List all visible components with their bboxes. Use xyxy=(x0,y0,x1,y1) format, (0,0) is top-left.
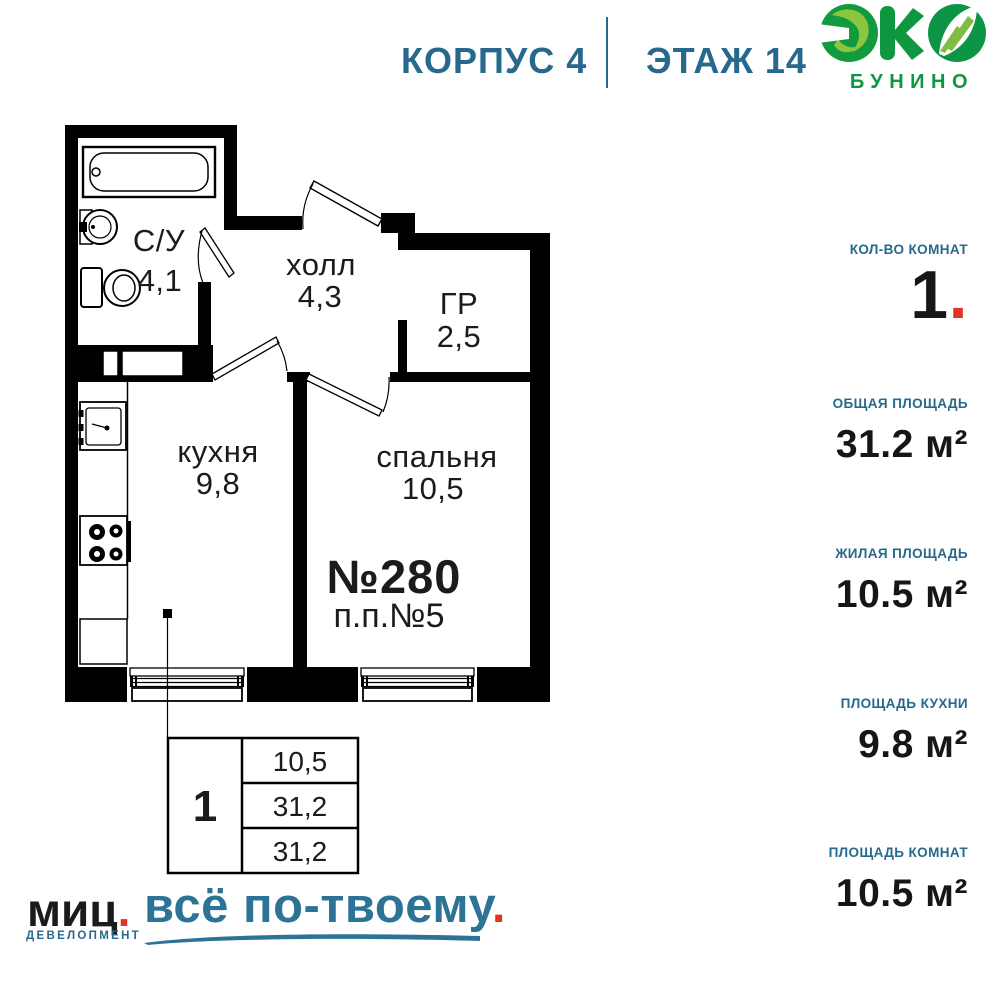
room-bathroom-name: С/У xyxy=(133,223,185,258)
bathroom-transom-windows xyxy=(103,351,183,376)
stat-total-area-label: ОБЩАЯ ПЛОЩАДЬ xyxy=(688,396,968,411)
stat-rooms-area-value: 10.5 м² xyxy=(688,872,968,916)
apartment-number: №280 xyxy=(327,550,462,603)
room-kitchen-name: кухня xyxy=(177,434,258,469)
building-label: КОРПУС 4 xyxy=(401,40,587,82)
emblem-letter-e xyxy=(818,4,878,62)
emblem-letter-k xyxy=(880,6,924,60)
stat-kitchen-area-label: ПЛОЩАДЬ КУХНИ xyxy=(688,696,968,711)
stat-kitchen-area-value: 9.8 м² xyxy=(688,723,968,767)
room-bedroom-name: спальня xyxy=(376,439,497,474)
stat-living-area-value: 10.5 м² xyxy=(688,573,968,617)
kitchen-window xyxy=(127,667,247,702)
table-total-area-2: 31,2 xyxy=(273,836,328,867)
apartment-info-table: 1 10,5 31,2 31,2 xyxy=(168,738,358,873)
bedroom-door xyxy=(306,374,389,416)
stat-living-area-label: ЖИЛАЯ ПЛОЩАДЬ xyxy=(688,546,968,561)
toilet-icon xyxy=(81,268,140,307)
room-wardrobe-name: ГР xyxy=(440,286,478,321)
logo-project-name: БУНИНО xyxy=(818,71,1000,94)
mic-developer-sublabel: ДЕВЕЛОПМЕНТ xyxy=(26,930,141,942)
bathtub-icon xyxy=(83,147,215,197)
stat-rooms-count-value: 1. xyxy=(688,261,968,329)
stat-total-area: ОБЩАЯ ПЛОЩАДЬ 31.2 м² xyxy=(688,396,968,467)
table-living-area: 10,5 xyxy=(273,746,328,777)
room-bathroom-area: 4,1 xyxy=(138,263,183,298)
kitchen-sink-icon xyxy=(79,402,127,450)
eco-leaves-emblem-icon xyxy=(818,2,1000,64)
red-period: . xyxy=(949,257,968,333)
plan-position-number: п.п.№5 xyxy=(333,597,444,635)
floorplan-card: КОРПУС 4 ЭТАЖ 14 БУНИНО xyxy=(0,0,1000,1000)
washbasin-icon xyxy=(79,210,117,244)
mic-developer-logo: миц. xyxy=(27,887,130,933)
kitchen-door xyxy=(212,337,287,380)
room-hall-name: холл xyxy=(286,247,356,282)
room-kitchen-area: 9,8 xyxy=(196,466,241,501)
room-bedroom-area: 10,5 xyxy=(402,471,464,506)
room-labels: С/У 4,1 холл 4,3 ГР 2,5 кухня 9,8 спальн… xyxy=(133,223,498,635)
room-wardrobe-area: 2,5 xyxy=(437,319,482,354)
room-hall-area: 4,3 xyxy=(298,279,343,314)
eco-bunino-logo: БУНИНО xyxy=(818,2,1000,94)
stat-rooms-count: КОЛ-ВО КОМНАТ 1. xyxy=(688,242,968,329)
stove-icon xyxy=(80,516,131,565)
stat-rooms-count-label: КОЛ-ВО КОМНАТ xyxy=(688,242,968,257)
tagline-underline-swoosh xyxy=(142,930,484,946)
floorplan-drawing: 1 10,5 31,2 31,2 С/У 4,1 холл 4,3 ГР 2,5… xyxy=(60,120,580,880)
floor-label: ЭТАЖ 14 xyxy=(646,40,807,82)
table-total-area: 31,2 xyxy=(273,791,328,822)
stat-total-area-value: 31.2 м² xyxy=(688,423,968,467)
emblem-letter-o-leaf xyxy=(928,4,986,62)
table-rooms-count: 1 xyxy=(193,782,217,831)
bedroom-window xyxy=(358,667,477,702)
walls xyxy=(65,125,550,702)
stat-rooms-area: ПЛОЩАДЬ КОМНАТ 10.5 м² xyxy=(688,845,968,916)
stat-kitchen-area: ПЛОЩАДЬ КУХНИ 9.8 м² xyxy=(688,696,968,767)
bathroom-door xyxy=(198,228,234,283)
tagline-red-period: . xyxy=(492,879,506,933)
entrance-door xyxy=(303,181,382,229)
brand-red-period: . xyxy=(118,884,131,936)
header-divider xyxy=(606,17,608,88)
stat-living-area: ЖИЛАЯ ПЛОЩАДЬ 10.5 м² xyxy=(688,546,968,617)
stat-rooms-area-label: ПЛОЩАДЬ КОМНАТ xyxy=(688,845,968,860)
brand-tagline: всё по-твоему. xyxy=(144,882,506,931)
